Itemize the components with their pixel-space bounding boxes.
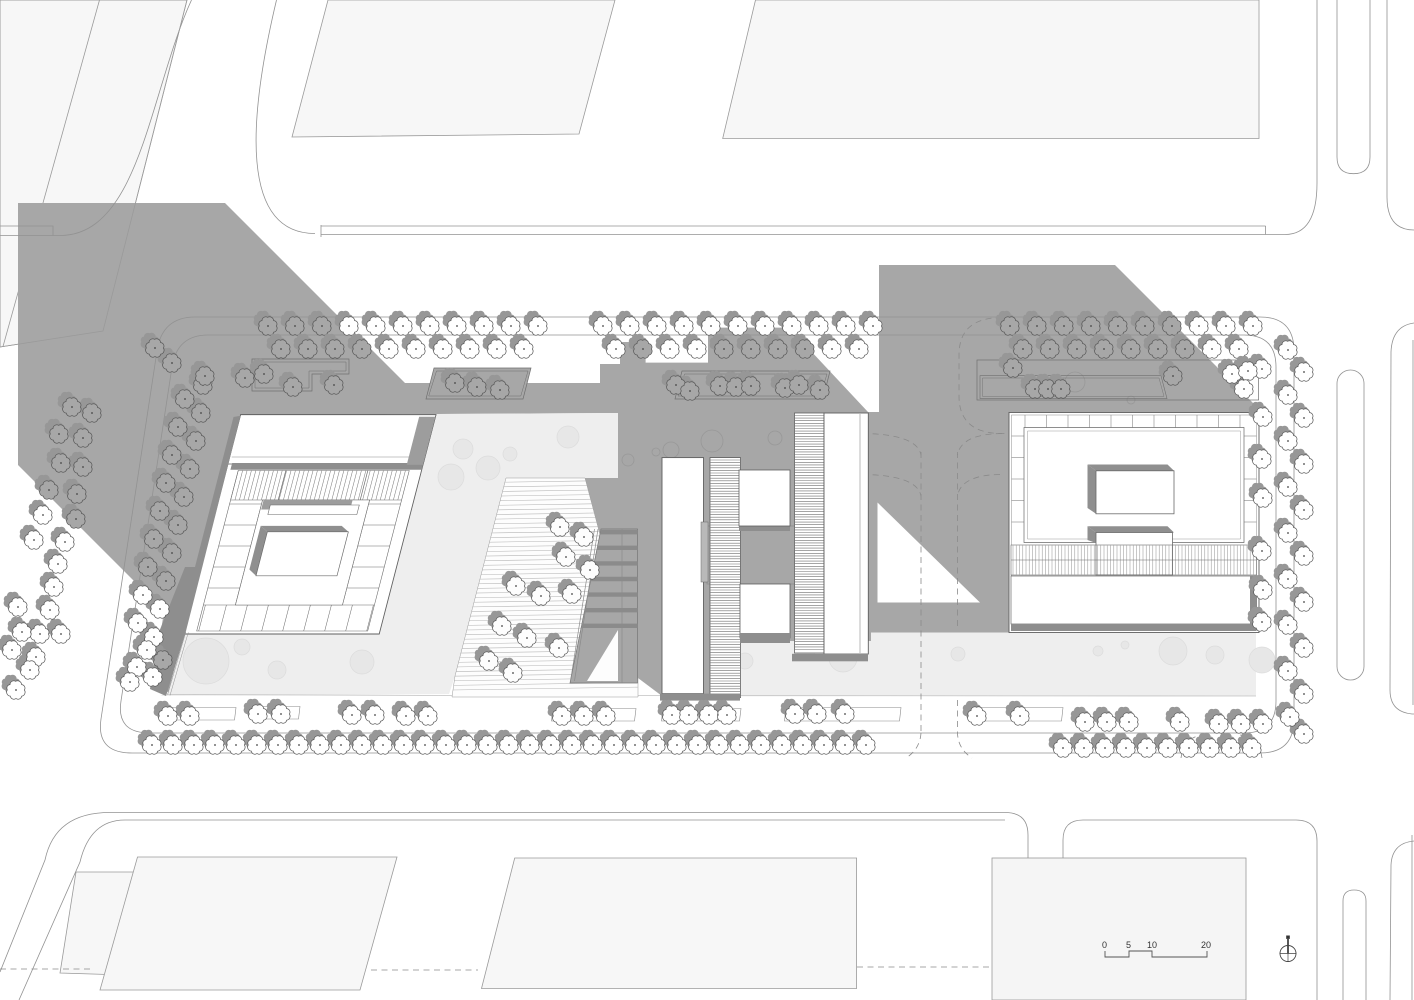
svg-text:10: 10 (1147, 940, 1157, 950)
svg-text:0: 0 (1102, 940, 1107, 950)
svg-text:20: 20 (1201, 940, 1211, 950)
svg-text:5: 5 (1126, 940, 1131, 950)
